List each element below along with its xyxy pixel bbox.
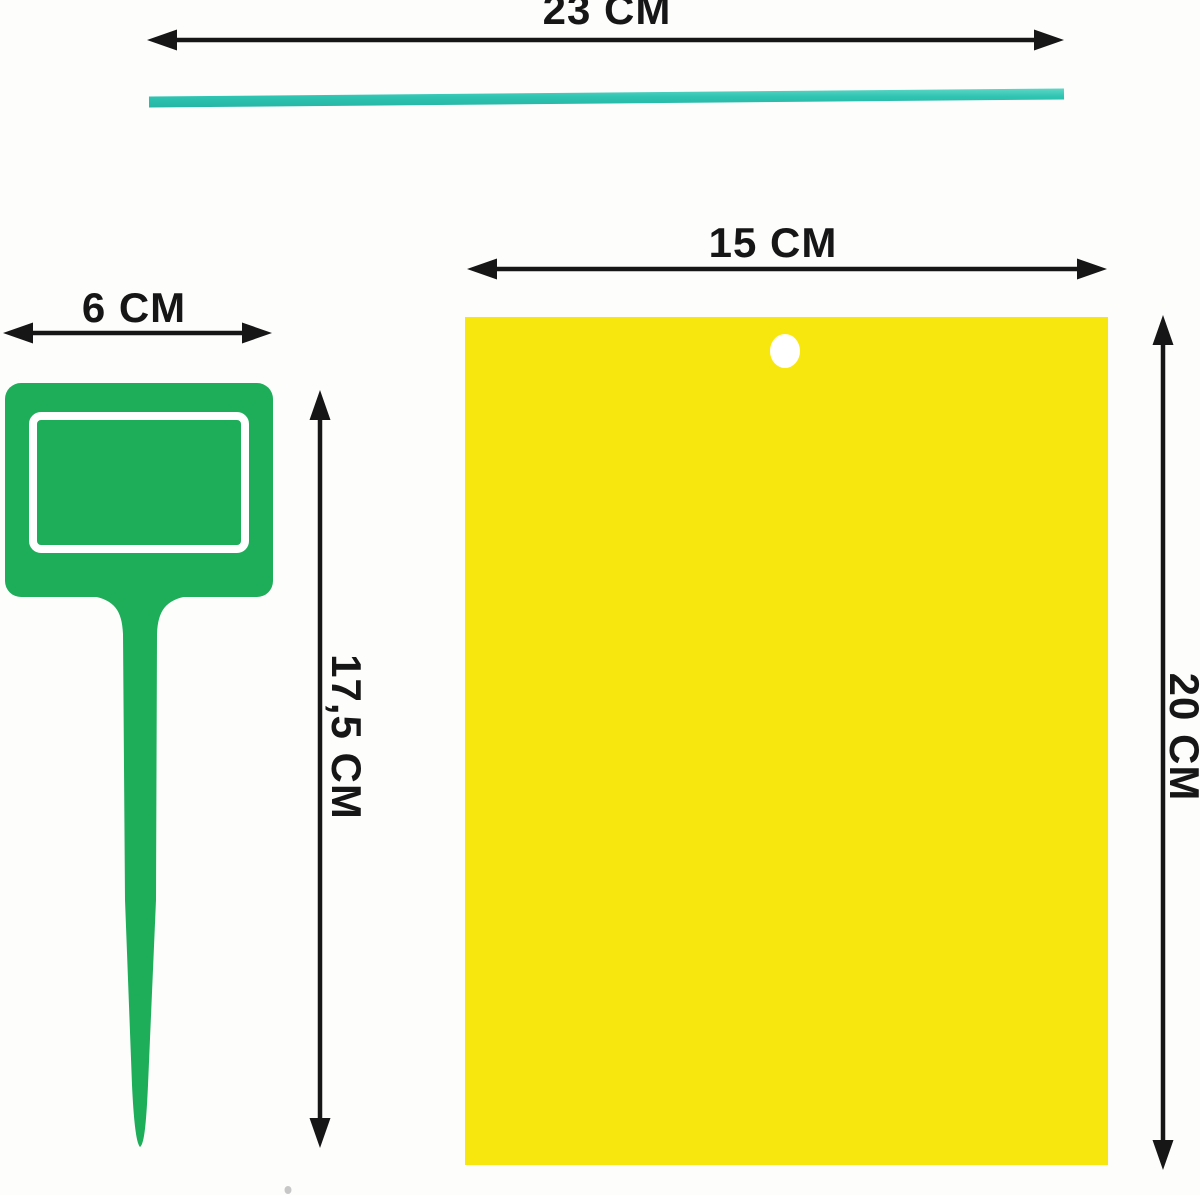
diagram-canvas [0, 0, 1200, 1195]
plant-label-stake [5, 383, 273, 1147]
card-hang-hole [770, 334, 800, 368]
stake-height-label: 17,5 CM [325, 654, 367, 820]
arrowhead-up-icon [310, 390, 331, 420]
arrowhead-right-icon [1034, 30, 1064, 51]
arrowhead-left-icon [147, 30, 177, 51]
arrowhead-right-icon [1077, 259, 1107, 280]
twist-tie [149, 94, 1064, 102]
stake-width-label: 6 CM [82, 287, 186, 329]
product-dimensions-diagram: 23 CM 15 CM 6 CM 17,5 CM 20 CM [0, 0, 1200, 1195]
artifact-dot [285, 1186, 292, 1194]
arrowhead-right-icon [242, 323, 272, 344]
arrowhead-up-icon [1153, 315, 1174, 345]
arrowhead-left-icon [3, 323, 33, 344]
sticky-trap-card [465, 317, 1108, 1165]
arrowhead-down-icon [1153, 1140, 1174, 1170]
arrowhead-down-icon [310, 1118, 331, 1148]
tie-length-label: 23 CM [543, 0, 672, 31]
card-height-label: 20 CM [1163, 673, 1200, 802]
arrowhead-left-icon [467, 259, 497, 280]
stake-stem [92, 596, 188, 1147]
card-width-label: 15 CM [709, 222, 838, 264]
